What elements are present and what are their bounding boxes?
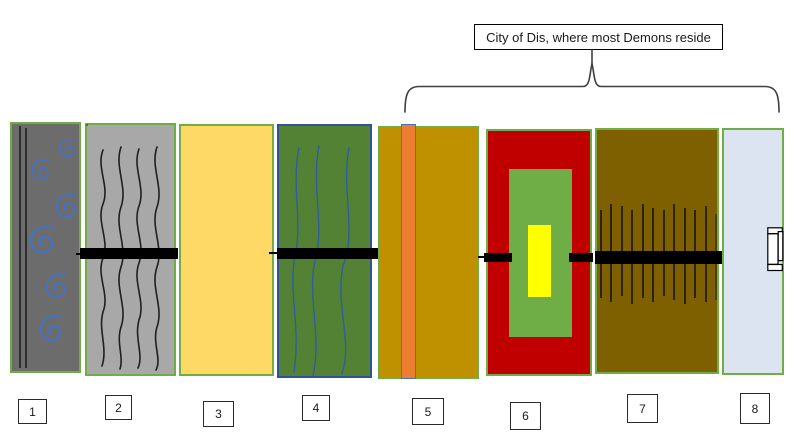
gate-icon bbox=[767, 227, 784, 272]
circle-number-8: 8 bbox=[752, 402, 759, 416]
circle-number-box-4: 4 bbox=[302, 395, 330, 421]
inner-yellow-rect bbox=[528, 225, 551, 297]
diagram-canvas: City of Dis, where most Demons reside bbox=[0, 0, 794, 444]
circle-number-box-8: 8 bbox=[740, 393, 770, 424]
circle-number-box-7: 7 bbox=[627, 394, 658, 423]
styx-orange-stripe bbox=[401, 124, 416, 379]
city-of-dis-label: City of Dis, where most Demons reside bbox=[474, 24, 723, 50]
divider-bar-5 bbox=[595, 251, 722, 264]
circle-number-box-1: 1 bbox=[18, 399, 47, 424]
divider-bar-2 bbox=[277, 248, 378, 259]
circle-number-3: 3 bbox=[215, 407, 222, 421]
wind-swirl-icons bbox=[31, 140, 75, 341]
vertical-lines-drawing bbox=[20, 126, 26, 368]
brace-bracket bbox=[398, 48, 786, 116]
circle-number-1: 1 bbox=[29, 405, 36, 419]
circle-number-5: 5 bbox=[425, 405, 432, 419]
divider-bar-lead bbox=[269, 252, 277, 254]
limbo-drawing bbox=[12, 124, 79, 371]
circle-number-box-2: 2 bbox=[105, 395, 132, 420]
circle-panel-5 bbox=[378, 126, 479, 379]
divider-bar-1 bbox=[80, 248, 178, 259]
circle-panel-1 bbox=[10, 122, 81, 373]
circle-number-box-6: 6 bbox=[510, 402, 541, 430]
circle-number-6: 6 bbox=[522, 409, 529, 423]
circle-number-box-5: 5 bbox=[412, 398, 444, 425]
circle-number-2: 2 bbox=[115, 401, 122, 415]
circle-number-7: 7 bbox=[639, 402, 646, 416]
circle-number-4: 4 bbox=[313, 401, 320, 415]
circle-panel-3 bbox=[179, 124, 274, 376]
curly-brace-path bbox=[405, 64, 779, 113]
divider-bar-3 bbox=[484, 253, 512, 262]
circle-number-box-3: 3 bbox=[203, 401, 234, 427]
city-of-dis-label-text: City of Dis, where most Demons reside bbox=[486, 30, 711, 45]
divider-bar-4 bbox=[569, 253, 593, 262]
